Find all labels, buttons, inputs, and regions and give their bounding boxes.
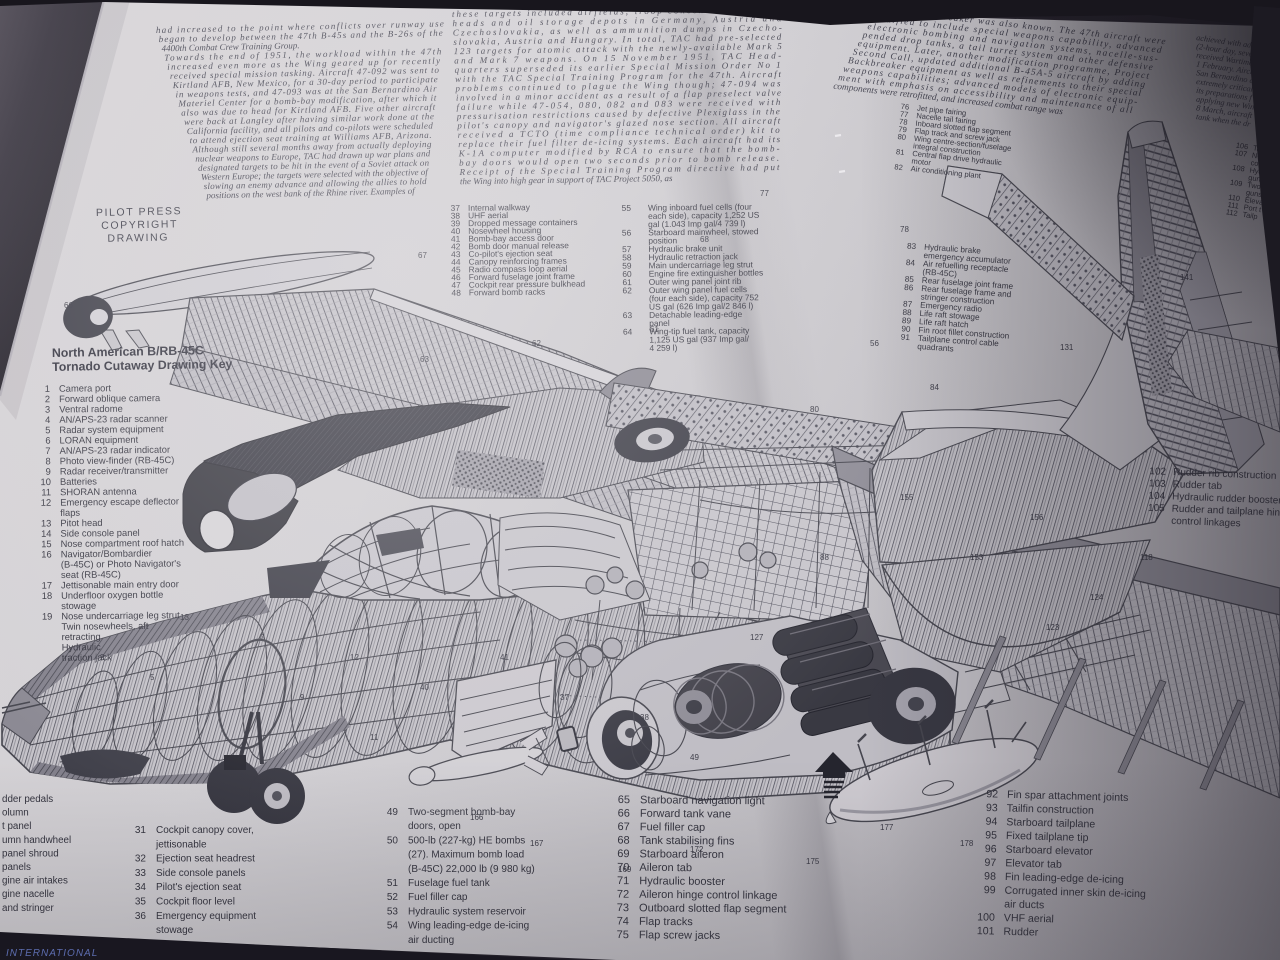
svg-text:62: 62 bbox=[532, 339, 541, 348]
svg-text:INTERNATIONAL: INTERNATIONAL bbox=[6, 948, 98, 959]
svg-text:62: 62 bbox=[622, 285, 632, 295]
svg-text:63: 63 bbox=[623, 310, 633, 320]
svg-text:63: 63 bbox=[420, 355, 429, 364]
svg-text:40: 40 bbox=[420, 683, 429, 692]
svg-text:66: 66 bbox=[64, 301, 73, 310]
svg-text:Emergency escape deflector: Emergency escape deflector bbox=[60, 495, 179, 507]
svg-text:4 259 l): 4 259 l) bbox=[649, 343, 677, 353]
svg-text:55: 55 bbox=[622, 203, 632, 213]
svg-text:5: 5 bbox=[150, 673, 155, 682]
svg-text:Forward bomb racks: Forward bomb racks bbox=[469, 287, 545, 298]
svg-text:48: 48 bbox=[451, 288, 461, 298]
svg-text:Twin nosewheels, aft: Twin nosewheels, aft bbox=[61, 620, 149, 632]
svg-text:41: 41 bbox=[500, 653, 509, 662]
svg-text:Underfloor oxygen bottle: Underfloor oxygen bottle bbox=[61, 589, 163, 601]
svg-text:16: 16 bbox=[41, 548, 52, 559]
svg-text:COPYRIGHT: COPYRIGHT bbox=[101, 218, 178, 232]
svg-text:67: 67 bbox=[418, 251, 427, 260]
svg-text:DRAWING: DRAWING bbox=[107, 231, 169, 244]
svg-text:7: 7 bbox=[260, 633, 265, 642]
svg-text:Radar receiver/transmitter: Radar receiver/transmitter bbox=[60, 464, 168, 476]
svg-text:13: 13 bbox=[180, 613, 189, 622]
svg-text:18: 18 bbox=[42, 590, 53, 601]
svg-text:56: 56 bbox=[622, 228, 632, 238]
svg-text:PILOT PRESS: PILOT PRESS bbox=[96, 205, 182, 219]
svg-text:12: 12 bbox=[350, 653, 359, 662]
svg-text:(B-45C) or Photo Navigator's: (B-45C) or Photo Navigator's bbox=[61, 557, 181, 569]
svg-text:64: 64 bbox=[623, 327, 633, 337]
svg-text:12: 12 bbox=[41, 497, 52, 508]
svg-text:19: 19 bbox=[42, 611, 53, 622]
svg-text:traction jack: traction jack bbox=[62, 651, 112, 663]
